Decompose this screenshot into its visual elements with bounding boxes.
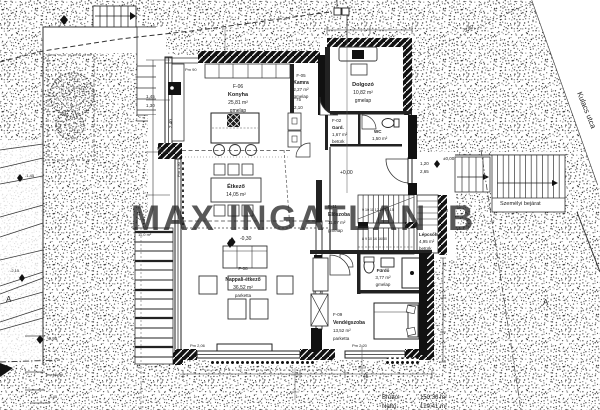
svg-text:gmelap: gmelap (376, 282, 391, 287)
svg-text:gmelap: gmelap (230, 108, 247, 114)
svg-text:±0,00: ±0,00 (443, 156, 455, 161)
svg-text:Konyha: Konyha (228, 92, 249, 98)
svg-text:Pm 2,06: Pm 2,06 (190, 343, 206, 348)
svg-text:F-08: F-08 (238, 266, 248, 271)
svg-text:2,40: 2,40 (168, 119, 173, 128)
svg-text:+0,00: +0,00 (340, 170, 353, 176)
svg-text:-0,95: -0,95 (47, 336, 58, 341)
svg-text:F-05: F-05 (296, 73, 306, 78)
svg-text:90: 90 (157, 146, 163, 151)
svg-text:Pm 1,90: Pm 1,90 (176, 161, 181, 177)
svg-text:1,50 m²: 1,50 m² (372, 136, 388, 141)
svg-text:4,95 m²: 4,95 m² (419, 239, 435, 244)
svg-text:Nappali-étkező: Nappali-étkező (225, 277, 260, 283)
svg-text:gmelap: gmelap (355, 98, 372, 104)
svg-text:parketta: parketta (235, 293, 252, 298)
svg-text:3,77 m²: 3,77 m² (375, 275, 391, 280)
svg-text:Vendégszoba: Vendégszoba (333, 320, 365, 326)
svg-text:Pm 2,20: Pm 2,20 (352, 343, 368, 348)
svg-text:1,67 m²: 1,67 m² (332, 132, 348, 137)
svg-text:1,30: 1,30 (146, 103, 155, 108)
svg-text:A: A (543, 298, 549, 307)
svg-text:F-02: F-02 (332, 118, 342, 123)
svg-text:betürk: betürk (332, 139, 345, 144)
svg-text:Kamra: Kamra (293, 80, 309, 86)
svg-text:36,52 m²: 36,52 m² (233, 285, 253, 291)
svg-text:F-06: F-06 (233, 84, 244, 90)
svg-text:14,05 m²: 14,05 m² (226, 192, 246, 198)
svg-text:A: A (6, 295, 12, 304)
svg-text:2,10: 2,10 (294, 105, 303, 110)
svg-text:75: 75 (296, 97, 302, 102)
svg-text:Pm 90: Pm 90 (185, 67, 197, 72)
svg-text:1,20: 1,20 (420, 161, 429, 166)
svg-text:Fürdő: Fürdő (377, 268, 390, 273)
svg-text:Étkező: Étkező (227, 182, 245, 190)
svg-text:WC: WC (374, 129, 382, 134)
svg-text:-2,15: -2,15 (10, 268, 20, 273)
svg-text:10,82 m²: 10,82 m² (353, 90, 373, 96)
svg-text:45: 45 (363, 374, 369, 380)
svg-text:25,81 m²: 25,81 m² (228, 100, 248, 106)
svg-text:150,36 m²: 150,36 m² (420, 395, 447, 401)
svg-text:MAX INGATLAN B: MAX INGATLAN B (131, 199, 476, 238)
svg-text:parketta: parketta (333, 336, 350, 341)
svg-text:Gard.: Gard. (332, 125, 344, 130)
svg-text:F-09: F-09 (333, 312, 343, 317)
svg-text:120,41 m²: 120,41 m² (420, 404, 447, 410)
svg-text:-3,45: -3,45 (48, 394, 58, 399)
svg-text:13,52 m²: 13,52 m² (333, 328, 351, 333)
svg-text:Személyi bejárat: Személyi bejárat (500, 201, 541, 207)
svg-text:Dolgozó: Dolgozó (352, 82, 374, 88)
svg-text:1,45: 1,45 (146, 94, 155, 99)
svg-text:Nettó:: Nettó: (382, 404, 398, 410)
svg-text:2,27 m²: 2,27 m² (293, 87, 309, 92)
svg-text:Bruttó:: Bruttó: (382, 395, 400, 401)
svg-text:Terepszint: Terepszint (45, 372, 64, 377)
svg-text:-1,45: -1,45 (25, 173, 35, 178)
svg-text:2,65: 2,65 (420, 169, 429, 174)
